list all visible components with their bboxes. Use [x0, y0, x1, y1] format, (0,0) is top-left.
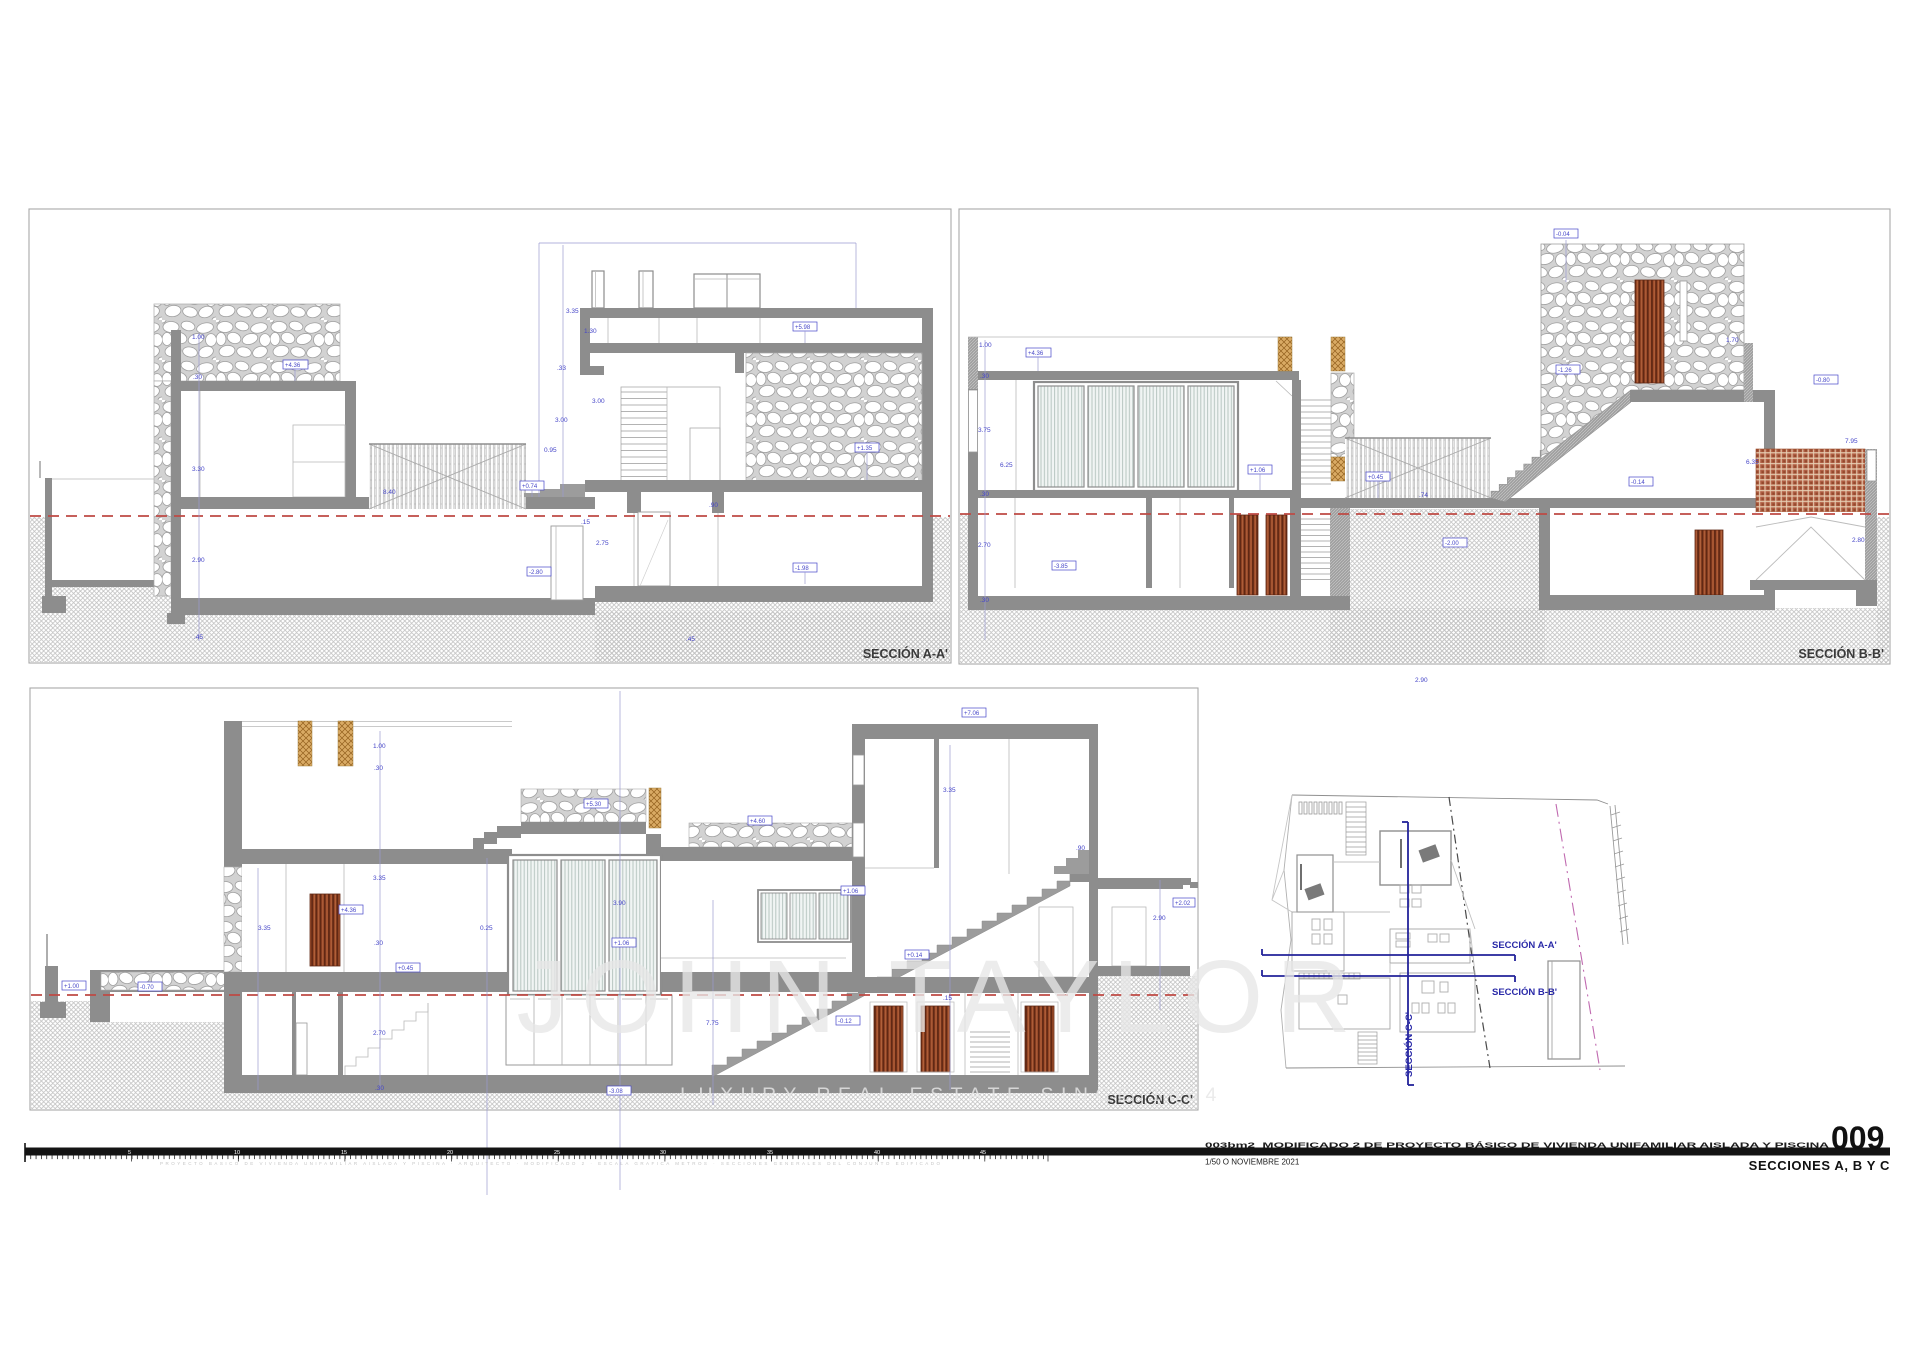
svg-text:.30: .30 — [980, 373, 989, 380]
svg-text:SECCIÓN A-A': SECCIÓN A-A' — [863, 646, 948, 661]
svg-text:3.00: 3.00 — [592, 398, 605, 405]
svg-text:15: 15 — [341, 1150, 347, 1156]
svg-text:-2.80: -2.80 — [529, 570, 543, 576]
svg-text:+5.30: +5.30 — [586, 802, 602, 808]
svg-text:3.35: 3.35 — [943, 787, 956, 794]
svg-text:1.70: 1.70 — [1726, 337, 1739, 344]
svg-text:35: 35 — [767, 1150, 773, 1156]
svg-text:6.35: 6.35 — [1746, 459, 1759, 466]
svg-text:-0.80: -0.80 — [1816, 378, 1830, 384]
svg-text:40: 40 — [874, 1150, 880, 1156]
svg-text:3.00: 3.00 — [555, 417, 568, 424]
svg-text:.74: .74 — [1419, 492, 1428, 499]
svg-text:1.00: 1.00 — [192, 334, 205, 341]
svg-text:.90: .90 — [1076, 845, 1085, 852]
svg-text:.30: .30 — [374, 765, 383, 772]
svg-text:-0.04: -0.04 — [1556, 232, 1570, 238]
svg-text:3.35: 3.35 — [566, 308, 579, 315]
svg-text:10: 10 — [234, 1150, 240, 1156]
svg-text:25: 25 — [554, 1150, 560, 1156]
svg-text:7.95: 7.95 — [1845, 438, 1858, 445]
svg-text:2.90: 2.90 — [1153, 915, 1166, 922]
svg-text:.30: .30 — [375, 1085, 384, 1092]
svg-text:LUXURY REAL ESTATE SINCE 1864: LUXURY REAL ESTATE SINCE 1864 — [680, 1084, 1224, 1106]
svg-text:.30: .30 — [980, 597, 989, 604]
svg-text:0.95: 0.95 — [544, 447, 557, 454]
svg-text:+2.02: +2.02 — [1175, 901, 1191, 907]
svg-text:+1.06: +1.06 — [1250, 468, 1266, 474]
svg-text:2.90: 2.90 — [1415, 677, 1428, 684]
svg-text:3.75: 3.75 — [978, 427, 991, 434]
svg-text:-1.26: -1.26 — [1558, 368, 1572, 374]
svg-text:.30: .30 — [374, 940, 383, 947]
svg-text:+0.45: +0.45 — [398, 966, 414, 972]
svg-text:PROYECTO BASICO DE VIVIENDA UN: PROYECTO BASICO DE VIVIENDA UNIFAMILIAR … — [160, 1161, 940, 1166]
svg-text:3.35: 3.35 — [373, 875, 386, 882]
svg-text:1.30: 1.30 — [584, 328, 597, 335]
svg-text:JOHN TAYLOR: JOHN TAYLOR — [517, 939, 1364, 1054]
svg-text:3.30: 3.30 — [192, 466, 205, 473]
svg-text:+4.60: +4.60 — [750, 819, 766, 825]
svg-text:SECCIÓN C-C': SECCIÓN C-C' — [1403, 1012, 1415, 1077]
svg-text:+4.36: +4.36 — [341, 908, 357, 914]
svg-text:.15: .15 — [581, 519, 590, 526]
svg-text:2.70: 2.70 — [978, 542, 991, 549]
svg-text:-3.08: -3.08 — [609, 1089, 623, 1095]
svg-text:1.00: 1.00 — [979, 342, 992, 349]
svg-text:-3.85: -3.85 — [1054, 564, 1068, 570]
svg-text:+1.00: +1.00 — [64, 984, 80, 990]
svg-text:+1.06: +1.06 — [843, 889, 859, 895]
svg-text:003bm2_MODIFICADO 2 DE PROYECT: 003bm2_MODIFICADO 2 DE PROYECTO BÁSICO D… — [1205, 1141, 1830, 1150]
svg-text:+4.36: +4.36 — [1028, 351, 1044, 357]
svg-text:009: 009 — [1831, 1120, 1884, 1156]
svg-text:.45: .45 — [194, 634, 203, 641]
svg-text:SECCIÓN B-B': SECCIÓN B-B' — [1492, 986, 1557, 998]
svg-text:-0.14: -0.14 — [1631, 480, 1645, 486]
svg-text:.45: .45 — [686, 636, 695, 643]
svg-text:20: 20 — [447, 1150, 453, 1156]
svg-text:5: 5 — [128, 1150, 131, 1156]
svg-text:.30: .30 — [980, 491, 989, 498]
svg-text:6.25: 6.25 — [1000, 462, 1013, 469]
svg-text:+4.36: +4.36 — [285, 363, 301, 369]
svg-text:SECCIONES A, B Y C: SECCIONES A, B Y C — [1749, 1158, 1890, 1173]
svg-text:+5.98: +5.98 — [795, 325, 811, 331]
svg-text:2.80: 2.80 — [1852, 537, 1865, 544]
svg-text:8.40: 8.40 — [383, 489, 396, 496]
svg-text:3.90: 3.90 — [613, 900, 626, 907]
svg-text:+1.35: +1.35 — [857, 446, 873, 452]
svg-text:SECCIÓN A-A': SECCIÓN A-A' — [1492, 939, 1557, 951]
svg-text:SECCIÓN B-B': SECCIÓN B-B' — [1798, 646, 1884, 661]
svg-text:-0.70: -0.70 — [140, 985, 154, 991]
svg-text:0.25: 0.25 — [480, 925, 493, 932]
svg-text:2.75: 2.75 — [596, 540, 609, 547]
svg-text:1/50 O NOVIEMBRE 2021: 1/50 O NOVIEMBRE 2021 — [1205, 1158, 1300, 1167]
svg-text:45: 45 — [980, 1150, 986, 1156]
svg-text:2.70: 2.70 — [373, 1030, 386, 1037]
svg-text:1.00: 1.00 — [373, 743, 386, 750]
svg-text:3.35: 3.35 — [258, 925, 271, 932]
svg-text:-1.98: -1.98 — [795, 566, 809, 572]
svg-text:.30: .30 — [193, 374, 202, 381]
svg-text:.90: .90 — [709, 502, 718, 509]
svg-text:+0.45: +0.45 — [1368, 475, 1384, 481]
svg-text:+0.74: +0.74 — [522, 484, 538, 490]
svg-text:+7.06: +7.06 — [964, 711, 980, 717]
svg-text:2.90: 2.90 — [192, 557, 205, 564]
svg-text:-2.00: -2.00 — [1445, 541, 1459, 547]
svg-text:.33: .33 — [557, 365, 566, 372]
svg-text:30: 30 — [660, 1150, 666, 1156]
